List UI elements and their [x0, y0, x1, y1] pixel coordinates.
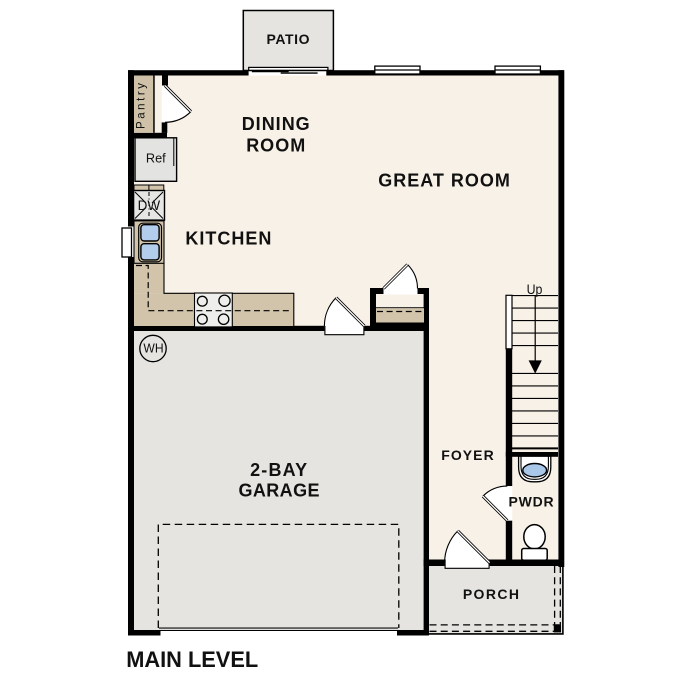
svg-text:PORCH: PORCH: [463, 586, 521, 602]
svg-text:PWDR: PWDR: [509, 493, 555, 509]
svg-text:WH: WH: [143, 342, 163, 356]
svg-text:Ref: Ref: [146, 150, 166, 165]
svg-text:KITCHEN: KITCHEN: [185, 229, 272, 249]
svg-text:MAIN LEVEL: MAIN LEVEL: [126, 647, 258, 672]
svg-text:DINING: DINING: [242, 114, 311, 134]
svg-text:DW: DW: [138, 198, 161, 213]
svg-text:GREAT ROOM: GREAT ROOM: [378, 171, 511, 191]
svg-text:Pantry: Pantry: [136, 83, 148, 129]
svg-text:FOYER: FOYER: [441, 447, 494, 463]
svg-text:2-BAY: 2-BAY: [250, 460, 308, 480]
svg-text:Up: Up: [527, 281, 543, 297]
svg-text:GARAGE: GARAGE: [238, 480, 319, 500]
svg-text:PATIO: PATIO: [266, 31, 310, 47]
svg-text:ROOM: ROOM: [246, 135, 306, 155]
